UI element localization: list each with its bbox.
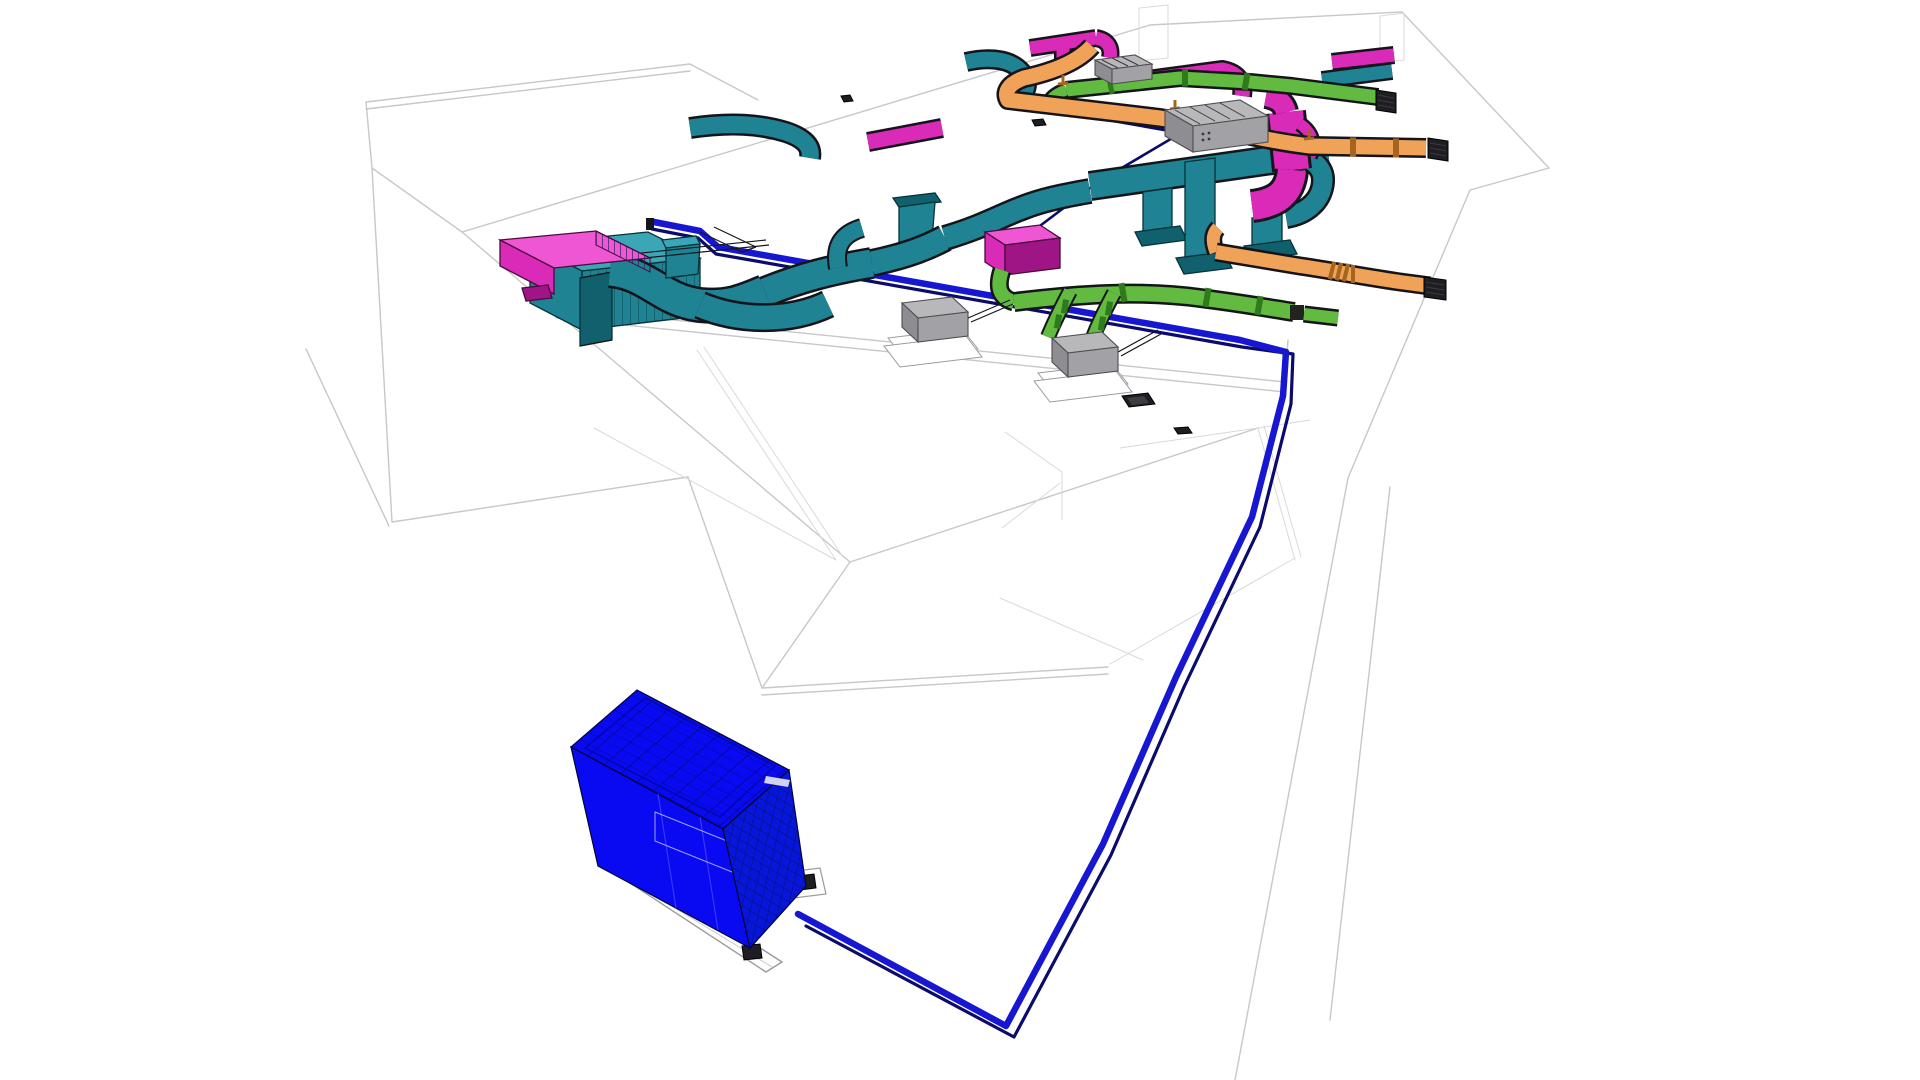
central-ahu[interactable] [1165, 100, 1268, 152]
model-viewport[interactable]: 3D HVAC and piping coordination model vi… [0, 0, 1920, 1080]
roof-hatch-large [1122, 393, 1155, 407]
wireframe-main-slab [462, 12, 1549, 1080]
oa-wall-louver [1376, 90, 1396, 113]
supply-run-up[interactable] [872, 238, 945, 263]
model-canvas[interactable]: 3D HVAC and piping coordination model vi… [0, 0, 1920, 1080]
exhaust-right-stub[interactable] [1332, 55, 1394, 62]
rooftop-unit-2[interactable] [1034, 330, 1161, 402]
roof-hatch-small [1174, 427, 1192, 434]
return-lower-louver [1424, 277, 1446, 300]
supply-elbow-low[interactable] [700, 304, 828, 318]
roof-curb-b [841, 95, 853, 102]
supply-trunk-run[interactable] [765, 263, 872, 292]
supply-drop-a[interactable] [1135, 188, 1187, 246]
pipe-end-cap [646, 218, 654, 230]
return-lower-run[interactable] [1216, 252, 1430, 286]
coil-access-frame [580, 272, 612, 346]
chiller-unit[interactable] [571, 690, 826, 972]
oa-end-stub[interactable] [1304, 314, 1338, 318]
supply-right-stub[interactable] [1322, 71, 1392, 80]
supply-upper-left-run[interactable] [690, 125, 810, 158]
supply-riser[interactable] [662, 236, 700, 278]
return-upper-louver [1428, 138, 1448, 161]
exhaust-fan-box[interactable] [985, 225, 1060, 275]
oa-end-coupling [1290, 305, 1304, 320]
upper-ahu[interactable] [1095, 55, 1152, 84]
refrigerant-pair-2 [1118, 330, 1161, 356]
rooftop-unit-1[interactable] [884, 297, 1013, 367]
roof-curb-a [1032, 119, 1046, 126]
building-wireframe [306, 5, 1549, 1080]
